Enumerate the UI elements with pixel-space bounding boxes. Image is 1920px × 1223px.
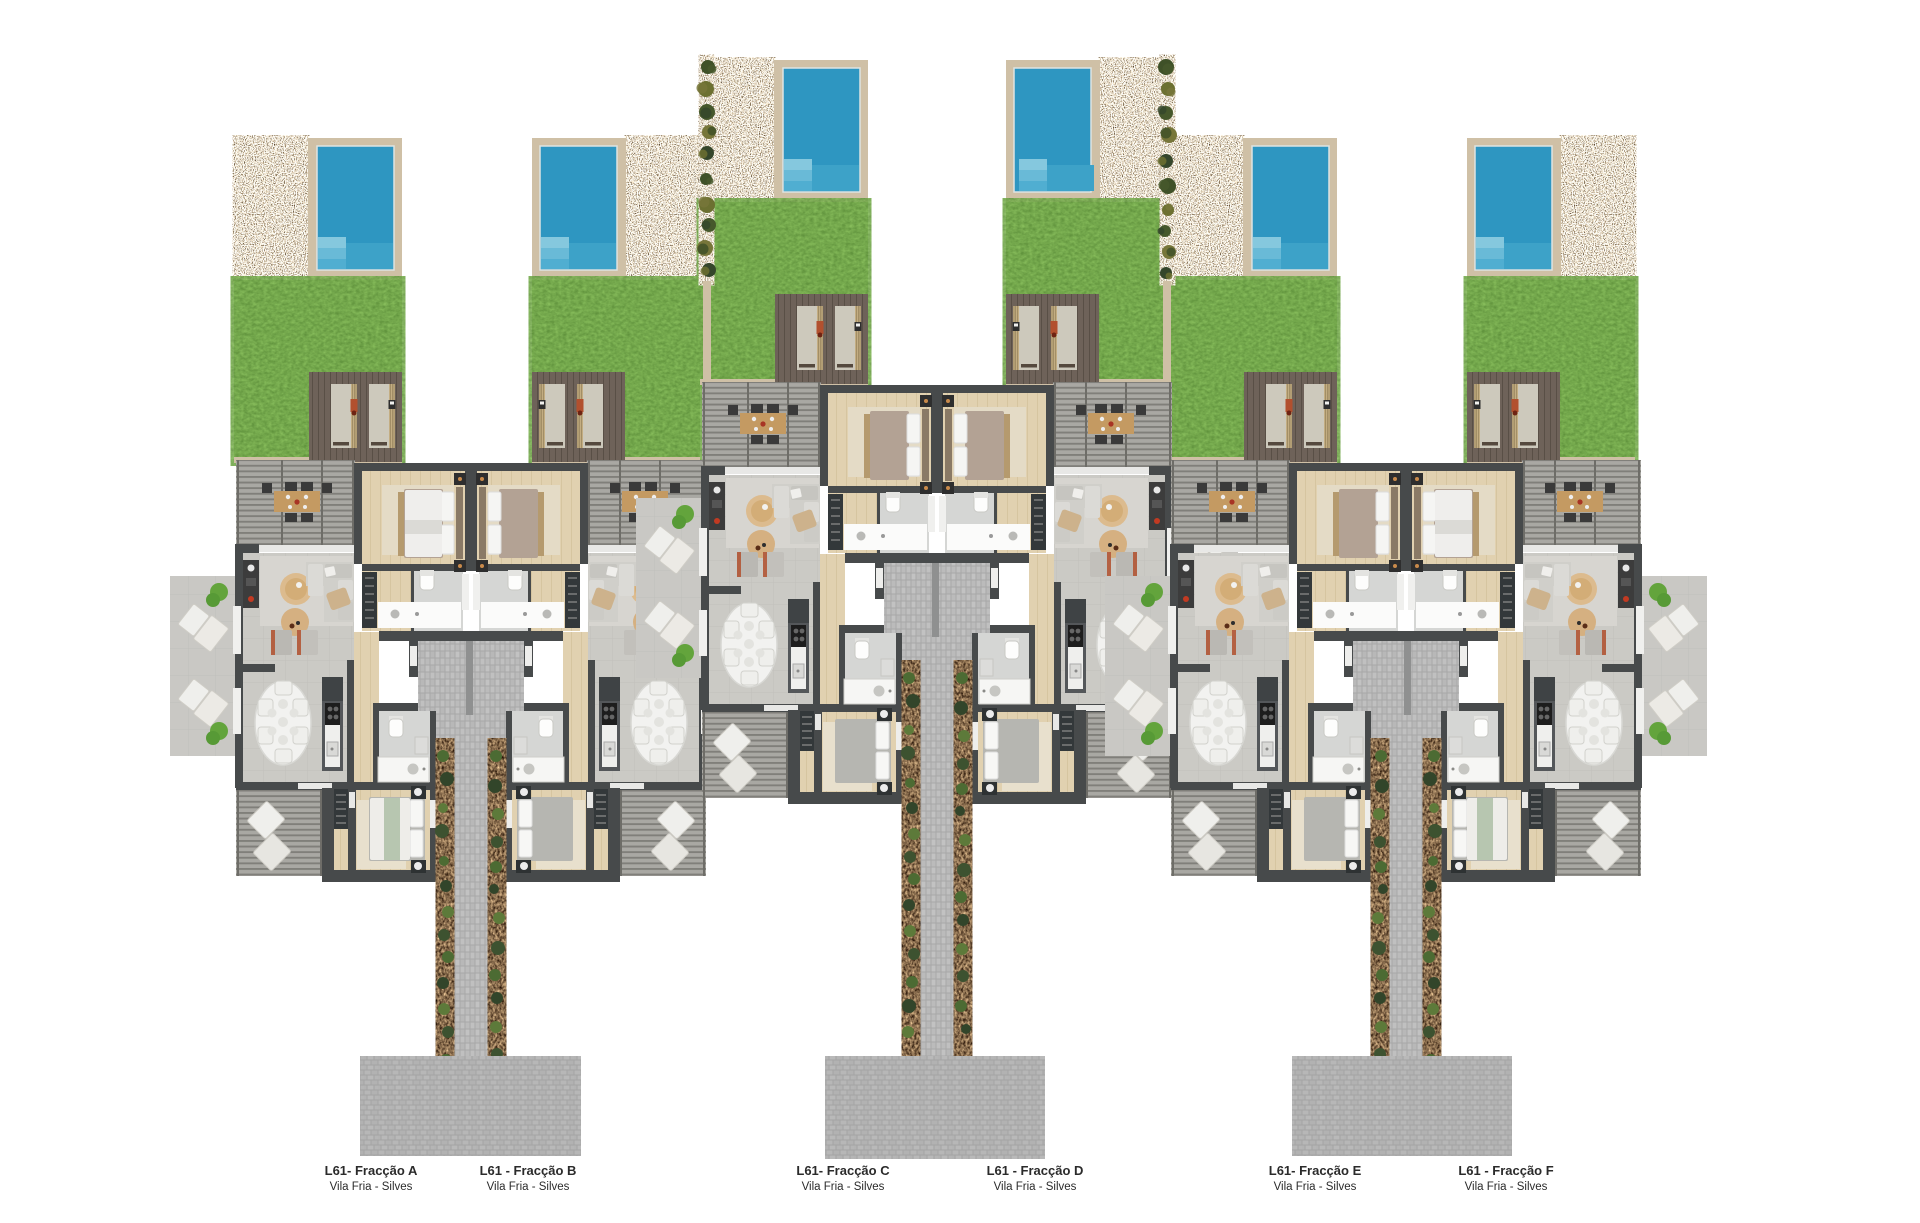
svg-text:Vila Fria - Silves: Vila Fria - Silves [1465,1181,1548,1193]
svg-text:Vila Fria - Silves: Vila Fria - Silves [1274,1181,1357,1193]
svg-text:L61- Fracção C: L61- Fracção C [796,1163,890,1178]
svg-text:L61 - Fracção D: L61 - Fracção D [987,1163,1084,1178]
svg-text:L61 - Fracção B: L61 - Fracção B [480,1163,577,1178]
svg-text:Vila Fria - Silves: Vila Fria - Silves [487,1181,570,1193]
svg-text:Vila Fria - Silves: Vila Fria - Silves [330,1181,413,1193]
svg-text:L61- Fracção E: L61- Fracção E [1269,1163,1362,1178]
svg-text:L61- Fracção A: L61- Fracção A [325,1163,418,1178]
svg-text:Vila Fria - Silves: Vila Fria - Silves [802,1181,885,1193]
svg-text:L61 - Fracção F: L61 - Fracção F [1458,1163,1553,1178]
svg-text:Vila Fria - Silves: Vila Fria - Silves [994,1181,1077,1193]
